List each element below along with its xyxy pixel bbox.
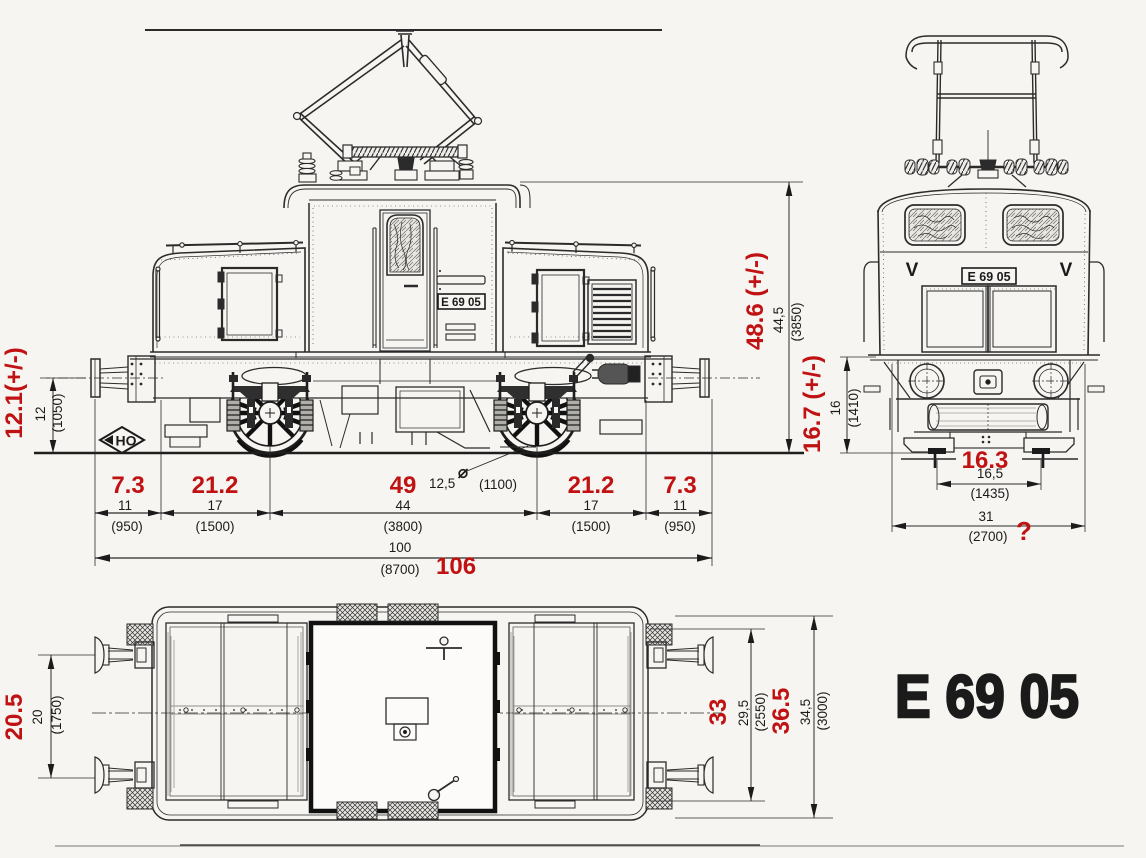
svg-text:(1410): (1410) [846, 388, 861, 427]
svg-text:17: 17 [207, 498, 222, 513]
svg-text:(1050): (1050) [50, 393, 65, 432]
svg-text:(1435): (1435) [970, 486, 1009, 501]
svg-text:33: 33 [705, 699, 732, 726]
svg-text:36.5: 36.5 [768, 688, 795, 735]
svg-text:(3850): (3850) [789, 302, 804, 341]
svg-text:12: 12 [33, 406, 48, 421]
svg-text:44,5: 44,5 [771, 307, 786, 333]
svg-text:E 69 05: E 69 05 [441, 297, 481, 309]
svg-text:31: 31 [978, 509, 993, 524]
svg-text:(2550): (2550) [753, 692, 768, 731]
svg-text:34,5: 34,5 [798, 699, 813, 725]
svg-text:44: 44 [395, 498, 411, 513]
svg-text:12,5: 12,5 [429, 476, 455, 491]
svg-text:20: 20 [30, 709, 45, 724]
svg-text:17: 17 [583, 498, 598, 513]
svg-text:16: 16 [828, 400, 843, 415]
svg-text:21.2: 21.2 [192, 472, 239, 499]
svg-text:(8700): (8700) [380, 562, 419, 577]
svg-text:(3000): (3000) [815, 691, 830, 730]
svg-text:20.5: 20.5 [1, 694, 28, 741]
svg-text:48.6 (+/-): 48.6 (+/-) [742, 252, 769, 350]
svg-text:11: 11 [118, 498, 132, 513]
svg-text:HO: HO [116, 433, 137, 449]
svg-text:100: 100 [389, 540, 412, 555]
svg-text:(1100): (1100) [479, 477, 517, 492]
svg-text:16.3: 16.3 [962, 447, 1009, 474]
svg-text:29,5: 29,5 [736, 700, 751, 726]
svg-text:12.1(+/-): 12.1(+/-) [1, 347, 28, 438]
svg-text:11: 11 [673, 498, 687, 513]
svg-text:E 69 05: E 69 05 [895, 663, 1079, 730]
svg-text:E 69 05: E 69 05 [967, 270, 1010, 284]
svg-text:21.2: 21.2 [568, 472, 615, 499]
svg-text:106: 106 [436, 553, 476, 580]
svg-text:(950): (950) [664, 519, 696, 534]
svg-text:(950): (950) [111, 519, 143, 534]
svg-text:?: ? [1016, 516, 1032, 546]
svg-text:(1500): (1500) [195, 519, 234, 534]
svg-text:(3800): (3800) [383, 519, 422, 534]
svg-text:7.3: 7.3 [663, 472, 696, 499]
svg-text:(1750): (1750) [49, 695, 64, 734]
svg-text:7.3: 7.3 [111, 472, 144, 499]
svg-text:V: V [1060, 260, 1073, 281]
svg-text:(1500): (1500) [571, 519, 610, 534]
svg-text:V: V [906, 260, 919, 281]
svg-text:(2700): (2700) [968, 529, 1007, 544]
svg-text:49: 49 [390, 472, 417, 499]
svg-text:16.7 (+/-): 16.7 (+/-) [799, 355, 826, 453]
